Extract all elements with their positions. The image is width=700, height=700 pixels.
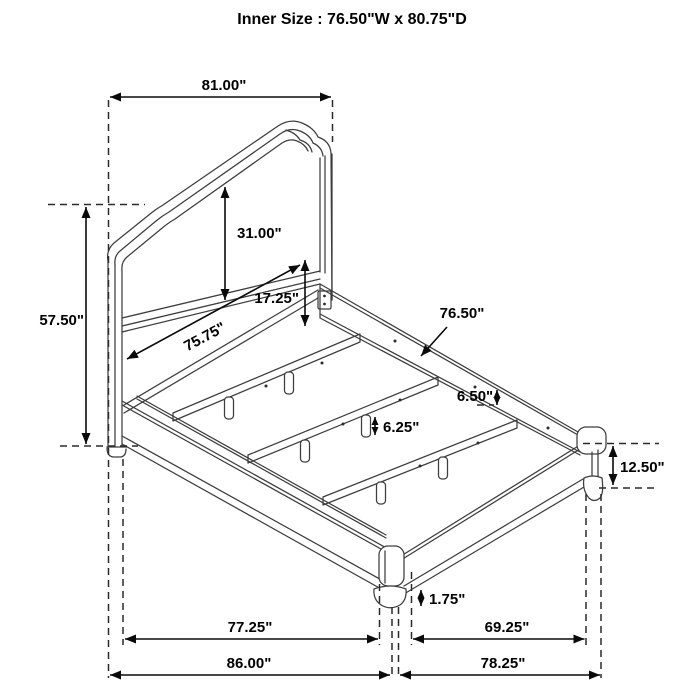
dim-label-side-rail-height: 12.50" [620, 459, 665, 476]
dim-side-rail-length: 69.25" [412, 494, 587, 645]
dim-label-overall-width: 86.00" [227, 655, 272, 672]
front-side-rail [122, 396, 390, 590]
footboard-face [401, 445, 584, 594]
footboard-corner-near [379, 546, 404, 586]
screw-hole [394, 340, 397, 343]
screw-hole [321, 362, 324, 365]
center-leg [285, 372, 294, 394]
dim-panel-height: 31.00" [225, 187, 282, 300]
dim-slat-length: 76.50" [421, 305, 484, 356]
dim-label-slat-frame-width: 77.25" [228, 619, 273, 636]
headboard-right-post [320, 154, 332, 300]
screw-hole [477, 442, 480, 445]
dim-label-side-rail-length: 69.25" [485, 619, 530, 636]
dim-overall-width: 86.00" [110, 607, 392, 678]
screw-hole [342, 423, 345, 426]
dim-label-inner-width: 75.75" [181, 319, 228, 355]
screw-hole [399, 399, 402, 402]
dim-label-center-leg-height: 6.25" [383, 419, 419, 436]
dim-label-headboard-height: 57.50" [39, 312, 84, 329]
center-leg [225, 397, 234, 419]
dim-rail-to-ledge: 6.50" [457, 388, 497, 405]
dim-label-slat-length: 76.50" [440, 305, 485, 322]
page-title: Inner Size : 76.50"W x 80.75"D [237, 11, 467, 28]
center-leg [439, 457, 448, 479]
screw-hole [419, 465, 422, 468]
dim-label-panel-height: 31.00" [237, 225, 282, 242]
dim-label-headboard-width: 81.00" [202, 77, 247, 94]
footboard [374, 427, 606, 608]
dim-rail-drop: 17.25" [254, 260, 305, 326]
headboard-molding [115, 130, 323, 265]
bed-frame [122, 284, 585, 590]
center-leg [301, 440, 310, 462]
dim-foot-height: 1.75" [421, 590, 465, 608]
center-leg [377, 482, 386, 504]
slat-3 [323, 420, 517, 505]
screw-hole [547, 427, 550, 430]
footboard-corner-far [577, 427, 606, 454]
center-leg [362, 415, 371, 437]
dim-label-rail-drop: 17.25" [254, 290, 299, 307]
leader-line [421, 327, 447, 356]
dim-label-overall-depth: 78.25" [481, 655, 526, 672]
slats [173, 334, 517, 505]
dim-slat-frame-width: 77.25" [123, 459, 380, 645]
dim-label-foot-height: 1.75" [429, 591, 465, 608]
dim-line [127, 265, 300, 359]
bracket-hole [323, 303, 326, 306]
screw-hole [265, 385, 268, 388]
bracket-hole [323, 295, 326, 298]
dim-center-leg-height: 6.25" [375, 417, 419, 436]
headboard-panel-edge [122, 140, 308, 271]
headboard-corner-curl [286, 130, 312, 152]
dim-overall-depth: 78.25" [399, 494, 602, 678]
bed-dimension-diagram: 81.00" 57.50" 31.00" 17.25" 75.75" 76.50… [0, 0, 700, 700]
diagram-canvas: 81.00" 57.50" 31.00" 17.25" 75.75" 76.50… [0, 0, 700, 700]
headboard-left-post [107, 265, 127, 457]
dim-headboard-inner-width: 75.75" [127, 265, 300, 359]
foot-near [374, 586, 406, 608]
dim-headboard-width: 81.00" [109, 77, 333, 678]
dim-label-rail-to-ledge: 6.50" [457, 388, 493, 405]
